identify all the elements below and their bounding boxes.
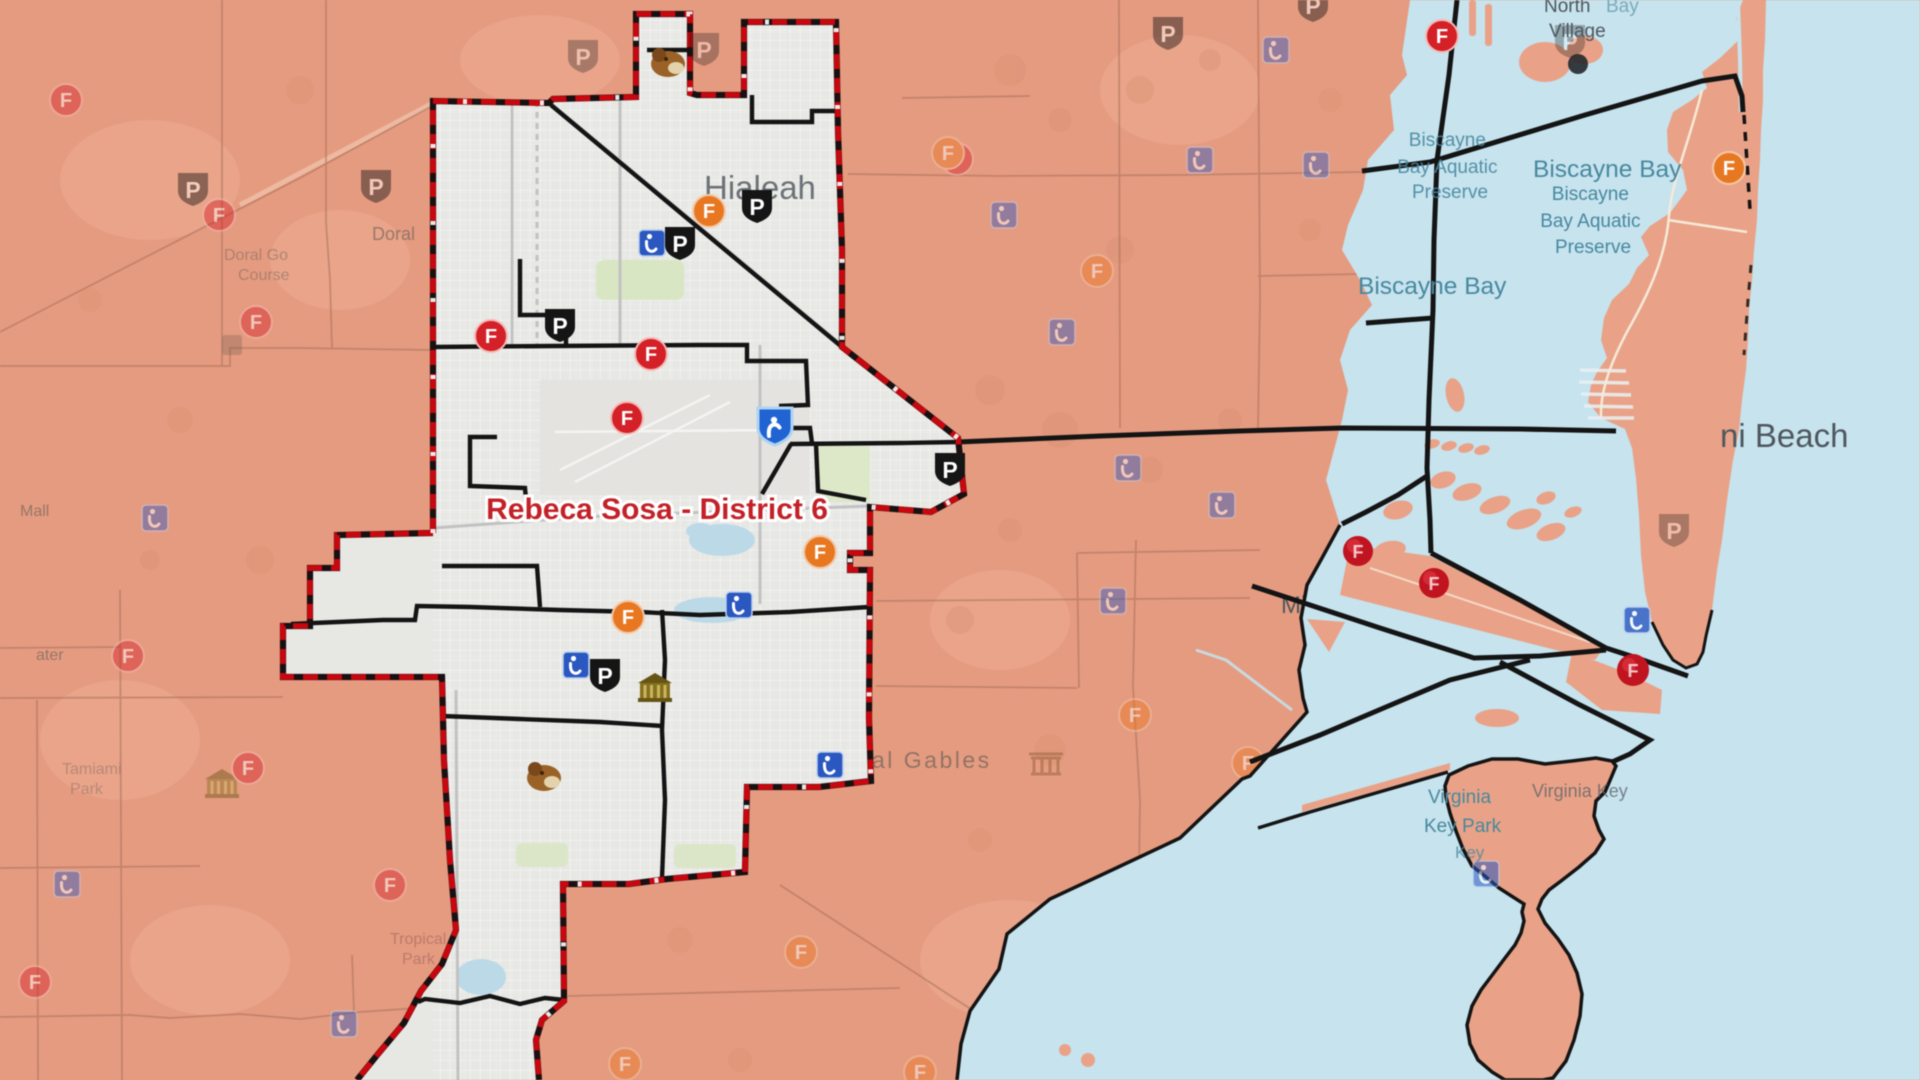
svg-text:al Gables: al Gables bbox=[872, 747, 992, 773]
svg-text:Biscayne Bay: Biscayne Bay bbox=[1533, 156, 1682, 183]
svg-text:Park: Park bbox=[70, 781, 104, 798]
svg-text:Tamiami: Tamiami bbox=[62, 761, 122, 778]
svg-text:F: F bbox=[1353, 542, 1364, 562]
svg-text:F: F bbox=[1429, 574, 1440, 594]
svg-text:Tropical: Tropical bbox=[390, 931, 446, 948]
svg-text:Park: Park bbox=[402, 951, 436, 968]
svg-text:Course: Course bbox=[238, 267, 290, 284]
svg-text:Key: Key bbox=[1455, 843, 1485, 862]
svg-text:Biscayne Bay Aquatic P: Biscayne Bay Aquatic Preserve bbox=[1540, 184, 1646, 258]
svg-text:Rebeca Sosa - District 6: Rebeca Sosa - District 6 bbox=[486, 493, 828, 526]
svg-text:ater: ater bbox=[36, 647, 64, 664]
svg-text:Biscayne Bay Aquatic P: Biscayne Bay Aquatic Preserve bbox=[1397, 130, 1503, 203]
svg-text:Village: Village bbox=[1549, 21, 1606, 42]
svg-text:Key Park: Key Park bbox=[1424, 816, 1502, 837]
svg-text:F: F bbox=[1628, 661, 1639, 681]
svg-text:Virginia Key: Virginia Key bbox=[1532, 781, 1628, 801]
svg-text:Bay: Bay bbox=[1606, 0, 1639, 17]
svg-text:North: North bbox=[1544, 0, 1590, 17]
svg-text:Biscayne Bay: Biscayne Bay bbox=[1358, 273, 1507, 300]
svg-text:Mall: Mall bbox=[20, 503, 49, 520]
svg-text:ni Beach: ni Beach bbox=[1720, 417, 1848, 454]
svg-text:Doral Go: Doral Go bbox=[224, 247, 288, 264]
svg-text:Doral: Doral bbox=[372, 224, 415, 244]
svg-text:Virginia: Virginia bbox=[1428, 787, 1491, 808]
